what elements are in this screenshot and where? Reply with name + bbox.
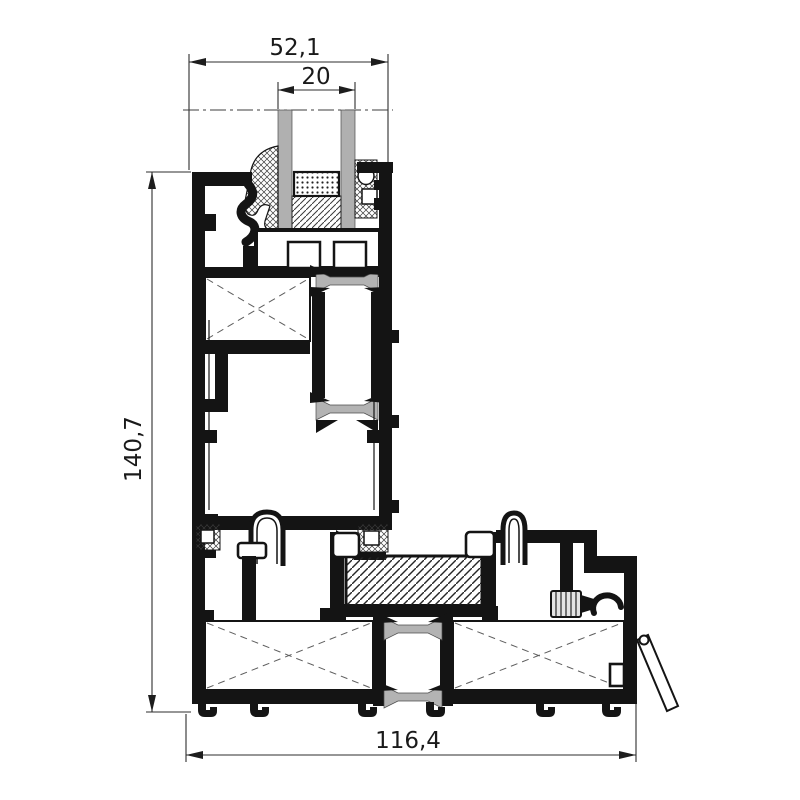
- inner-web: [192, 399, 228, 412]
- foot-hook: [250, 702, 269, 717]
- foot-hook: [602, 702, 621, 717]
- sash-gasket-left: [194, 514, 220, 558]
- wall-tab: [205, 214, 216, 231]
- glass-pane-left: [278, 110, 292, 230]
- head-top-wall: [192, 172, 252, 186]
- bottom-wall-right: [446, 690, 637, 704]
- thermal-chamber-bottom-right: [453, 621, 624, 690]
- technical-drawing-canvas: 52,1 20 140,7 116,4: [0, 0, 800, 800]
- gasket-clip: [238, 543, 266, 558]
- inner-web: [560, 543, 573, 598]
- arrowhead-left: [189, 58, 206, 66]
- threshold-tray: [320, 532, 498, 625]
- arrowhead-left: [186, 751, 203, 759]
- screw-fastener: [551, 591, 621, 617]
- bottom-thermal-channel: [373, 613, 453, 708]
- foot-hook: [198, 702, 217, 717]
- gasket-clip: [333, 533, 359, 557]
- fastener-hook: [593, 595, 621, 613]
- arrowhead-right: [339, 86, 355, 94]
- wall-rib: [392, 415, 399, 428]
- dimension-section-height: 140,7: [121, 172, 191, 712]
- tray-corner: [320, 608, 346, 620]
- channel-wall: [312, 292, 325, 398]
- screw-channel: [288, 242, 320, 268]
- dimension-label-glazing: 20: [301, 64, 330, 90]
- frame-step: [584, 530, 597, 560]
- silicone-seal: [292, 196, 341, 230]
- screw-channel: [334, 242, 366, 268]
- profile-section-drawing: 52,1 20 140,7 116,4: [0, 0, 800, 800]
- screw-boss: [205, 430, 217, 443]
- arrowhead-right: [619, 751, 636, 759]
- wall-rib: [392, 500, 399, 513]
- inner-web: [215, 354, 228, 404]
- dimension-glazing-thickness: 20: [278, 64, 355, 109]
- arrowhead-top: [148, 172, 156, 189]
- wall-rib: [392, 330, 399, 343]
- chamber-bottom-wall: [200, 341, 310, 354]
- channel-wall: [371, 292, 384, 398]
- frame-outer-lip: [584, 556, 637, 573]
- rubber-gasket-block: [346, 556, 482, 606]
- glass-pane-right: [341, 110, 355, 230]
- frame-upstand: [242, 556, 256, 622]
- drainage-flap: [637, 635, 678, 711]
- glazing-spacer: [294, 172, 339, 196]
- bottom-wall-left: [192, 690, 380, 704]
- screw-boss: [367, 430, 379, 443]
- arrowhead-right: [371, 58, 388, 66]
- arrowhead-left: [278, 86, 294, 94]
- thermal-chamber-upper: [205, 277, 310, 341]
- platform-support-wall: [192, 267, 391, 277]
- frame-profile: [192, 513, 678, 717]
- foot-hook: [536, 702, 555, 717]
- frame-bulb-gasket: [503, 513, 525, 565]
- chamber-clip: [610, 664, 624, 686]
- thermal-chamber-bottom-left: [205, 621, 373, 690]
- arrowhead-bottom: [148, 695, 156, 712]
- dimension-label-height: 140,7: [121, 416, 147, 482]
- dimension-label-top-width: 52,1: [269, 35, 320, 61]
- right-outer-wall: [624, 573, 637, 704]
- gasket-clip: [466, 532, 494, 557]
- dimension-label-bottom-width: 116,4: [375, 728, 441, 754]
- mounting-feet: [198, 702, 621, 717]
